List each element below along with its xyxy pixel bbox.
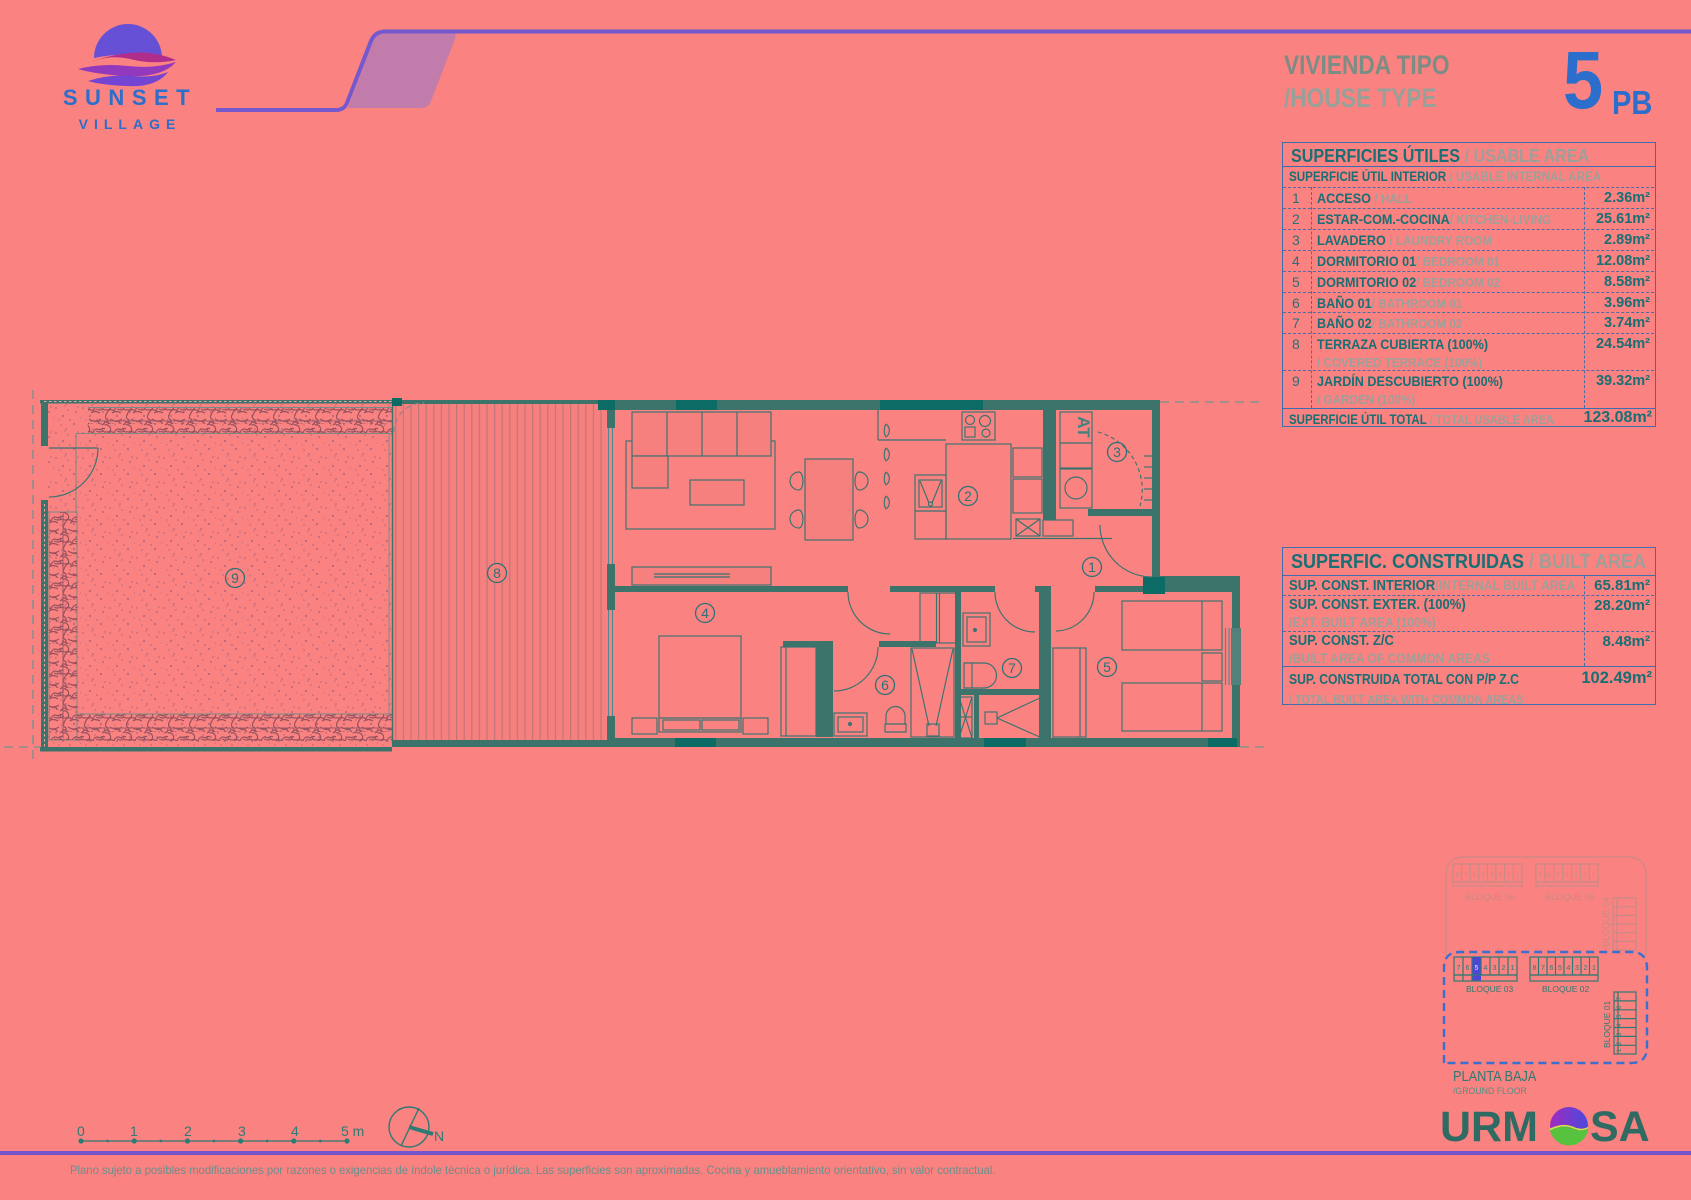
svg-text:N: N — [434, 1128, 444, 1144]
svg-text:6: 6 — [881, 677, 889, 693]
svg-text:7: 7 — [1008, 660, 1016, 676]
svg-text:1: 1 — [1592, 872, 1596, 879]
svg-text:2: 2 — [1507, 872, 1511, 879]
svg-text:URM: URM — [1440, 1104, 1538, 1148]
svg-text:3: 3 — [1498, 872, 1502, 879]
svg-text:5: 5 — [1103, 659, 1111, 675]
svg-text:4: 4 — [1565, 872, 1569, 879]
svg-text:5: 5 — [1475, 965, 1479, 972]
svg-text:2: 2 — [1583, 872, 1587, 879]
svg-text:3: 3 — [238, 1123, 246, 1139]
svg-text:BLOQUE 04: BLOQUE 04 — [1601, 897, 1611, 947]
svg-text:8: 8 — [1533, 965, 1537, 972]
svg-text:BLOQUE 06: BLOQUE 06 — [1465, 892, 1515, 902]
svg-text:7: 7 — [1539, 872, 1543, 879]
svg-text:1: 1 — [130, 1123, 138, 1139]
svg-text:2: 2 — [1502, 965, 1506, 972]
svg-text:6: 6 — [1466, 965, 1470, 972]
svg-text:5: 5 — [1556, 872, 1560, 879]
svg-text:BLOQUE 01: BLOQUE 01 — [1602, 1000, 1612, 1048]
svg-text:1: 1 — [1088, 559, 1096, 575]
svg-text:BLOQUE 02: BLOQUE 02 — [1542, 984, 1590, 994]
svg-text:AT: AT — [1074, 416, 1093, 438]
svg-text:4: 4 — [701, 605, 709, 621]
svg-text:4: 4 — [1484, 965, 1488, 972]
svg-text:5 m: 5 m — [341, 1123, 364, 1139]
svg-text:6: 6 — [1547, 872, 1551, 879]
svg-text:6: 6 — [1550, 965, 1554, 972]
svg-text:4: 4 — [1567, 965, 1571, 972]
svg-text:7: 7 — [1464, 872, 1468, 879]
svg-text:4: 4 — [1490, 872, 1494, 879]
svg-text:1: 1 — [1516, 872, 1520, 879]
svg-text:3: 3 — [1574, 872, 1578, 879]
svg-text:7: 7 — [1457, 965, 1461, 972]
svg-text:0: 0 — [77, 1123, 85, 1139]
svg-text:SA: SA — [1590, 1104, 1650, 1148]
svg-text:2: 2 — [1584, 965, 1588, 972]
svg-text:4: 4 — [291, 1123, 299, 1139]
svg-text:1: 1 — [1511, 965, 1515, 972]
svg-text:6: 6 — [1473, 872, 1477, 879]
svg-text:2: 2 — [964, 488, 972, 504]
svg-text:BLOQUE 05: BLOQUE 05 — [1545, 892, 1595, 902]
svg-text:1: 1 — [1592, 965, 1596, 972]
svg-text:8: 8 — [493, 565, 501, 581]
svg-text:3: 3 — [1493, 965, 1497, 972]
svg-text:7: 7 — [1541, 965, 1545, 972]
svg-text:9: 9 — [231, 570, 239, 586]
svg-text:3: 3 — [1575, 965, 1579, 972]
svg-text:5: 5 — [1558, 965, 1562, 972]
svg-text:2: 2 — [184, 1123, 192, 1139]
svg-text:5: 5 — [1481, 872, 1485, 879]
svg-text:8: 8 — [1456, 872, 1460, 879]
svg-text:3: 3 — [1113, 444, 1121, 460]
svg-text:BLOQUE 03: BLOQUE 03 — [1466, 984, 1514, 994]
